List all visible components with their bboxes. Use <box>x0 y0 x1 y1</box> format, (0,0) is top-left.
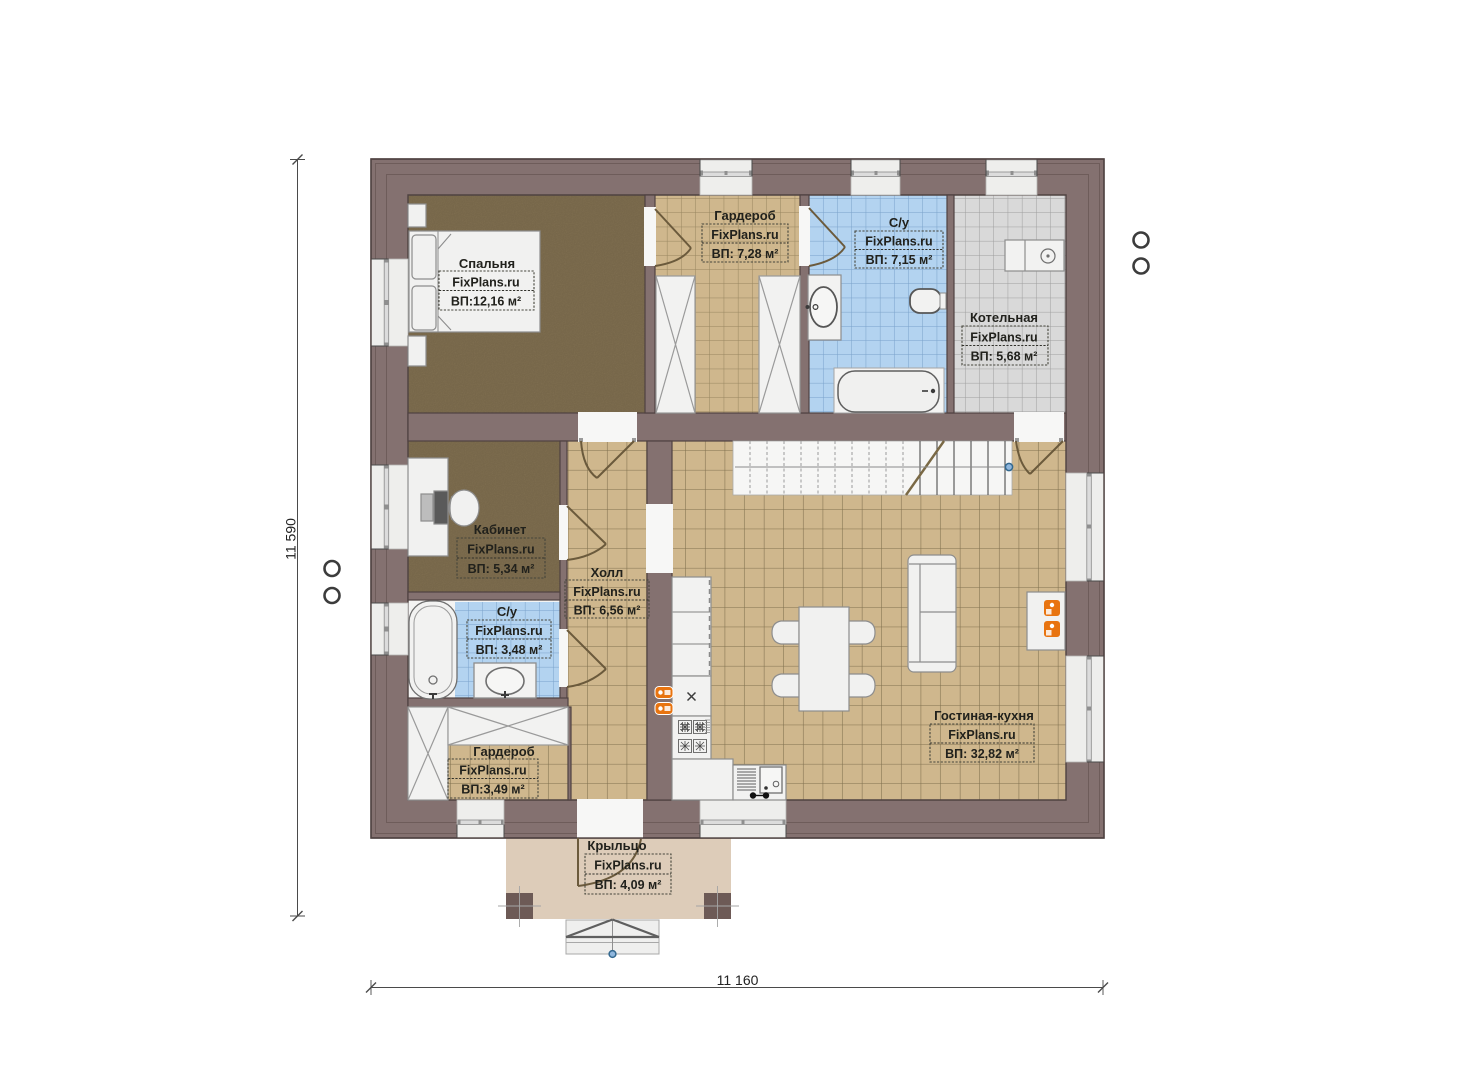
svg-text:FixPlans.ru: FixPlans.ru <box>459 764 526 778</box>
svg-text:ВП: 5,34 м²: ВП: 5,34 м² <box>468 562 535 576</box>
svg-text:Крыльцо: Крыльцо <box>587 838 646 853</box>
svg-text:FixPlans.ru: FixPlans.ru <box>594 859 661 873</box>
svg-text:Гостиная-кухня: Гостиная-кухня <box>934 708 1034 723</box>
svg-text:ВП: 4,09 м²: ВП: 4,09 м² <box>595 878 662 892</box>
svg-text:FixPlans.ru: FixPlans.ru <box>475 624 542 638</box>
svg-text:11 590: 11 590 <box>283 518 299 560</box>
svg-text:FixPlans.ru: FixPlans.ru <box>711 228 778 242</box>
svg-text:ВП: 7,15 м²: ВП: 7,15 м² <box>866 253 933 267</box>
svg-text:Гардероб: Гардероб <box>473 744 534 759</box>
svg-text:FixPlans.ru: FixPlans.ru <box>452 276 519 290</box>
svg-text:Холл: Холл <box>591 565 624 580</box>
svg-text:11 160: 11 160 <box>717 972 759 988</box>
svg-text:Спальня: Спальня <box>459 256 515 271</box>
svg-text:ВП: 7,28 м²: ВП: 7,28 м² <box>712 247 779 261</box>
svg-text:Гардероб: Гардероб <box>714 208 775 223</box>
svg-text:ВП:12,16 м²: ВП:12,16 м² <box>451 295 521 309</box>
svg-text:FixPlans.ru: FixPlans.ru <box>865 235 932 249</box>
svg-text:FixPlans.ru: FixPlans.ru <box>467 543 534 557</box>
svg-text:ВП: 5,68 м²: ВП: 5,68 м² <box>971 350 1038 364</box>
svg-text:FixPlans.ru: FixPlans.ru <box>948 728 1015 742</box>
svg-text:ВП:3,49 м²: ВП:3,49 м² <box>461 783 524 797</box>
svg-text:С/у: С/у <box>497 604 518 619</box>
svg-text:Кабинет: Кабинет <box>474 522 527 537</box>
svg-text:FixPlans.ru: FixPlans.ru <box>970 331 1037 345</box>
svg-text:FixPlans.ru: FixPlans.ru <box>573 585 640 599</box>
svg-text:Котельная: Котельная <box>970 310 1038 325</box>
svg-text:С/у: С/у <box>889 215 910 230</box>
svg-text:ВП: 32,82 м²: ВП: 32,82 м² <box>945 747 1019 761</box>
svg-text:ВП: 6,56 м²: ВП: 6,56 м² <box>574 604 641 618</box>
svg-text:ВП: 3,48 м²: ВП: 3,48 м² <box>476 643 543 657</box>
